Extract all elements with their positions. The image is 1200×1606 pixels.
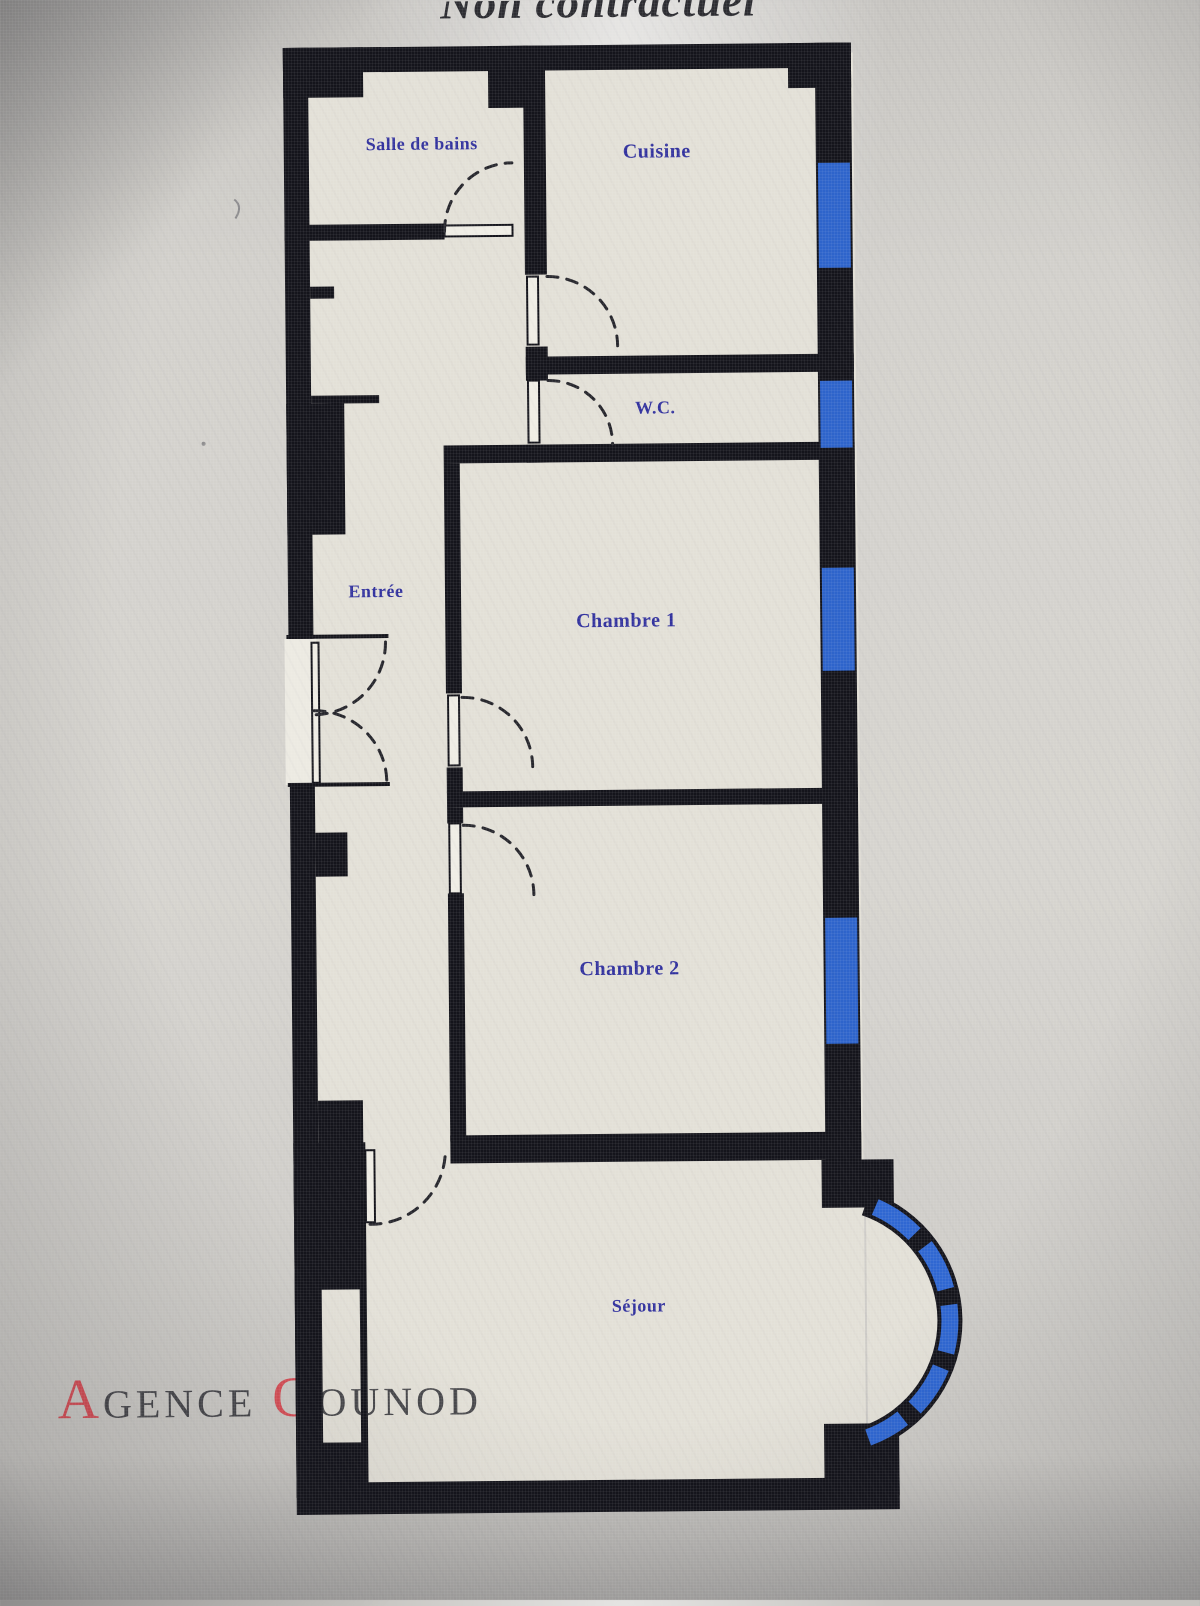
wall-stub-hall-top (310, 287, 334, 299)
window-kitchen (818, 163, 851, 268)
door-leaf-wc (528, 381, 540, 443)
wall-bottom-outer (297, 1477, 900, 1515)
photo-marks (199, 199, 241, 445)
watermark-word-gounod: GOUNOD (272, 1401, 482, 1420)
watermark-rest-gence: GENCE (103, 1380, 257, 1426)
door-leaf-livingroom (365, 1150, 375, 1222)
disclaimer-text: Non contractuel (439, 0, 757, 29)
wall-kitchen-wc (526, 354, 854, 375)
wall-bedroom1-left-b (447, 767, 463, 793)
room-label-salle-de-bains: Salle de bains (366, 133, 478, 154)
floor-area (293, 53, 867, 1488)
window-bedroom2 (825, 918, 858, 1044)
watermark-rest-ounod: OUNOD (317, 1378, 482, 1425)
wall-chimney-top (488, 46, 529, 108)
wall-closet-lip (311, 395, 379, 404)
door-leaf-kitchen (527, 277, 539, 345)
wall-bedroom2-livingroom (450, 1132, 861, 1164)
window-bedroom1 (822, 568, 855, 671)
wall-stub-hall-middle (315, 832, 347, 876)
room-label-chambre-1: Chambre 1 (576, 609, 676, 632)
wall-bedroom1-left-a (444, 463, 462, 693)
door-leaf-bedroom1 (448, 695, 460, 765)
wall-corner-top-right (788, 43, 851, 89)
wall-bathroom-bottom (284, 223, 444, 241)
watermark-agence-gounod: AGENCEGOUNOD (57, 1363, 498, 1432)
wall-divider-kitchen-a (523, 45, 547, 274)
wall-stub-hall-bottom (318, 1100, 363, 1144)
room-label-cuisine: Cuisine (623, 140, 691, 163)
wall-bedroom2-left-a (447, 807, 463, 823)
door-leaf-bedroom2 (449, 823, 461, 893)
room-label-sejour: Séjour (612, 1295, 666, 1316)
room-label-chambre-2: Chambre 2 (579, 957, 679, 980)
watermark-initial-g: G (272, 1366, 318, 1429)
window-wc (820, 381, 853, 448)
watermark-initial-a: A (57, 1368, 103, 1431)
wall-bedroom2-left-b (448, 893, 466, 1141)
room-label-entree: Entrée (348, 581, 403, 602)
wall-closet-block (286, 403, 345, 535)
wall-notch-top-left (283, 47, 363, 98)
room-label-wc: W.C. (635, 397, 676, 417)
photographed-floorplan-screen: { "photo": { "top_note": "Non contractue… (0, 0, 1200, 1600)
watermark-word-agence: AGENCE (58, 1403, 257, 1422)
entrance-door-leaf (311, 643, 319, 783)
screen-photo-content: Non contractuel (0, 0, 1200, 1606)
door-leaf-bathroom (444, 225, 512, 237)
floorplan-drawing: Non contractuel (0, 0, 1200, 1606)
